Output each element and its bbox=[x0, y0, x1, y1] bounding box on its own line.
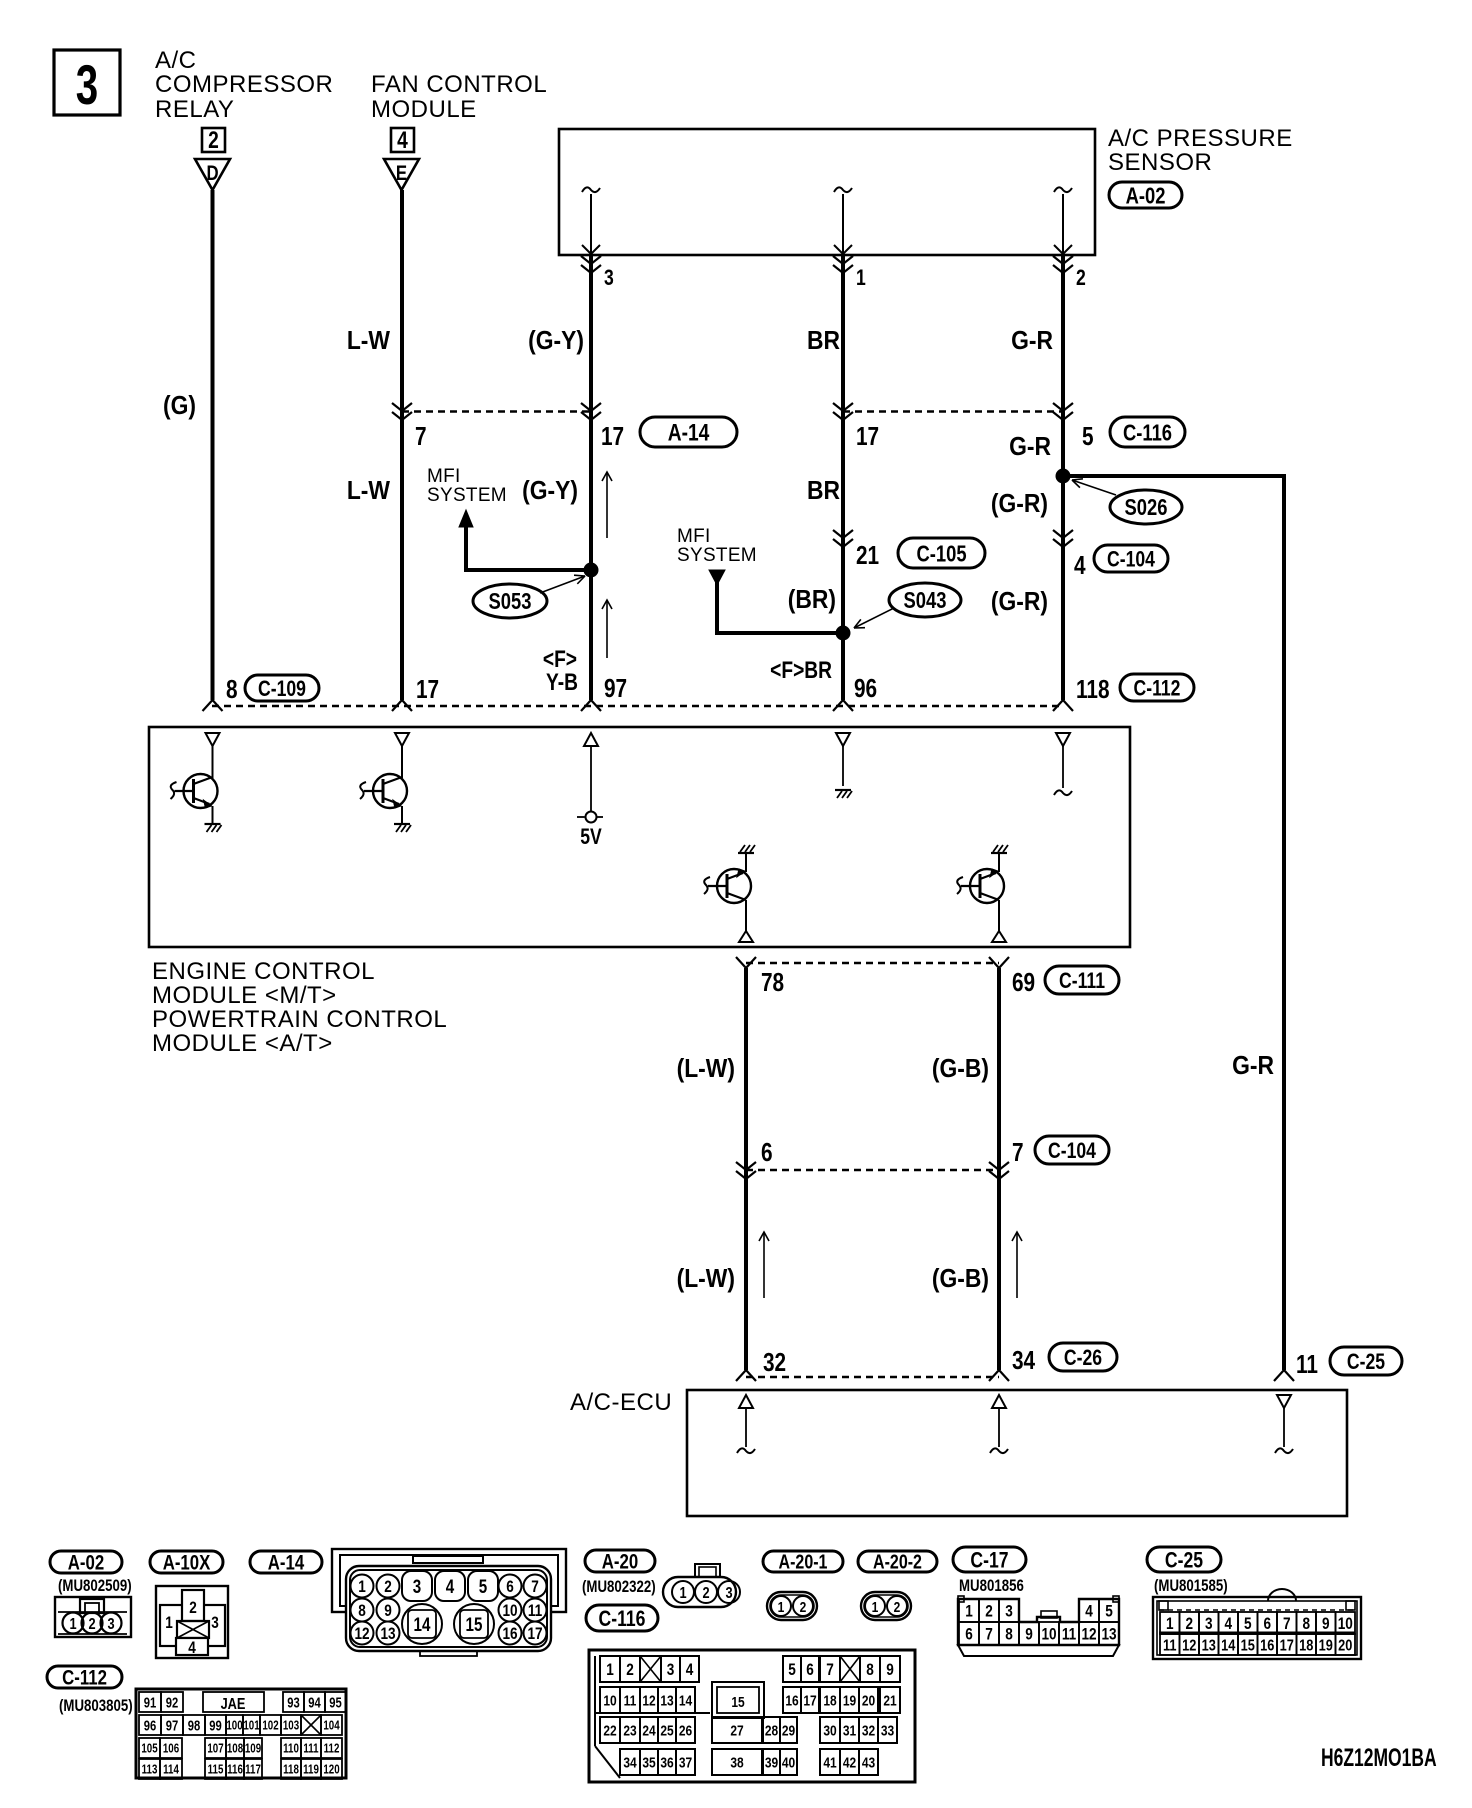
svg-text:6: 6 bbox=[1263, 1615, 1271, 1634]
svg-text:14: 14 bbox=[679, 1692, 693, 1709]
svg-text:10: 10 bbox=[1338, 1615, 1353, 1634]
svg-text:A-14: A-14 bbox=[268, 1552, 305, 1575]
svg-text:C-111: C-111 bbox=[1059, 969, 1105, 993]
svg-text:1: 1 bbox=[679, 1585, 686, 1603]
svg-text:96: 96 bbox=[854, 674, 877, 703]
svg-text:103: 103 bbox=[283, 1719, 299, 1733]
svg-text:C-116: C-116 bbox=[599, 1607, 646, 1631]
svg-text:112: 112 bbox=[324, 1742, 340, 1756]
svg-text:(G-R): (G-R) bbox=[991, 490, 1048, 519]
svg-text:5: 5 bbox=[1082, 422, 1094, 451]
svg-text:16: 16 bbox=[502, 1625, 517, 1644]
svg-text:C-17: C-17 bbox=[970, 1549, 1008, 1573]
svg-text:1: 1 bbox=[872, 1599, 879, 1616]
svg-text:3: 3 bbox=[413, 1575, 421, 1597]
svg-text:109: 109 bbox=[245, 1742, 261, 1756]
svg-text:15: 15 bbox=[731, 1694, 745, 1711]
svg-text:3: 3 bbox=[1205, 1615, 1213, 1634]
svg-text:4: 4 bbox=[1224, 1615, 1232, 1634]
svg-text:(L-W): (L-W) bbox=[677, 1055, 735, 1084]
svg-text:110: 110 bbox=[283, 1742, 299, 1756]
svg-text:7: 7 bbox=[826, 1661, 834, 1680]
svg-text:A-20-2: A-20-2 bbox=[873, 1551, 922, 1573]
svg-text:6: 6 bbox=[506, 1578, 514, 1597]
svg-text:7: 7 bbox=[985, 1625, 993, 1644]
svg-text:32: 32 bbox=[862, 1722, 876, 1739]
svg-text:15: 15 bbox=[1241, 1637, 1255, 1655]
svg-text:<F>BR: <F>BR bbox=[770, 656, 832, 684]
svg-text:A-20-1: A-20-1 bbox=[779, 1551, 828, 1573]
svg-text:107: 107 bbox=[207, 1742, 223, 1756]
svg-text:COMPRESSOR: COMPRESSOR bbox=[155, 71, 333, 98]
svg-text:6: 6 bbox=[761, 1138, 773, 1167]
svg-text:120: 120 bbox=[323, 1763, 339, 1777]
svg-text:3: 3 bbox=[667, 1661, 675, 1680]
svg-text:38: 38 bbox=[730, 1754, 744, 1771]
svg-text:9: 9 bbox=[1025, 1625, 1033, 1644]
svg-text:C-25: C-25 bbox=[1165, 1549, 1203, 1573]
svg-text:96: 96 bbox=[144, 1717, 157, 1734]
svg-text:1: 1 bbox=[1166, 1615, 1174, 1634]
svg-text:23: 23 bbox=[623, 1722, 637, 1739]
svg-text:7: 7 bbox=[1283, 1615, 1291, 1634]
svg-text:94: 94 bbox=[308, 1694, 321, 1711]
svg-text:13: 13 bbox=[660, 1692, 674, 1709]
svg-text:16: 16 bbox=[785, 1692, 799, 1709]
svg-text:A-14: A-14 bbox=[668, 419, 710, 447]
svg-text:92: 92 bbox=[166, 1694, 179, 1711]
svg-text:C-104: C-104 bbox=[1107, 548, 1155, 572]
svg-text:35: 35 bbox=[642, 1754, 656, 1771]
svg-text:102: 102 bbox=[262, 1719, 278, 1733]
svg-text:8: 8 bbox=[1302, 1615, 1310, 1634]
svg-text:113: 113 bbox=[142, 1763, 158, 1777]
svg-text:A-20: A-20 bbox=[602, 1551, 638, 1574]
svg-text:BR: BR bbox=[807, 327, 840, 356]
svg-text:41: 41 bbox=[823, 1754, 837, 1771]
svg-text:118: 118 bbox=[1076, 675, 1110, 704]
svg-text:D: D bbox=[206, 162, 218, 185]
svg-text:3: 3 bbox=[76, 55, 98, 117]
svg-text:3: 3 bbox=[107, 1616, 114, 1634]
svg-text:43: 43 bbox=[862, 1754, 876, 1771]
svg-text:A/C: A/C bbox=[155, 47, 197, 74]
svg-text:SYSTEM: SYSTEM bbox=[677, 545, 757, 566]
svg-text:25: 25 bbox=[660, 1722, 674, 1739]
svg-text:2: 2 bbox=[208, 126, 219, 154]
svg-text:(BR): (BR) bbox=[788, 586, 836, 615]
svg-text:ENGINE CONTROL: ENGINE CONTROL bbox=[152, 958, 375, 985]
svg-text:3: 3 bbox=[604, 266, 614, 290]
svg-text:27: 27 bbox=[730, 1722, 743, 1739]
svg-text:G-R: G-R bbox=[1232, 1052, 1274, 1081]
svg-text:1: 1 bbox=[358, 1578, 366, 1597]
svg-text:29: 29 bbox=[782, 1722, 796, 1739]
svg-text:C-116: C-116 bbox=[1123, 420, 1172, 445]
svg-text:(G-B): (G-B) bbox=[932, 1055, 989, 1084]
svg-text:MFI: MFI bbox=[677, 526, 711, 547]
svg-text:BR: BR bbox=[807, 477, 840, 506]
svg-text:97: 97 bbox=[166, 1717, 179, 1734]
svg-text:10: 10 bbox=[1041, 1625, 1056, 1644]
svg-text:19: 19 bbox=[1319, 1637, 1333, 1655]
svg-text:MODULE: MODULE bbox=[371, 96, 477, 123]
svg-text:(L-W): (L-W) bbox=[677, 1265, 735, 1294]
svg-text:C-105: C-105 bbox=[916, 541, 966, 566]
svg-text:C-104: C-104 bbox=[1048, 1139, 1096, 1163]
svg-text:15: 15 bbox=[466, 1613, 483, 1635]
svg-text:(G-R): (G-R) bbox=[991, 588, 1048, 617]
svg-text:31: 31 bbox=[843, 1722, 857, 1739]
svg-text:2: 2 bbox=[88, 1616, 95, 1634]
svg-text:FAN CONTROL: FAN CONTROL bbox=[371, 71, 547, 98]
svg-text:105: 105 bbox=[141, 1742, 158, 1756]
svg-text:RELAY: RELAY bbox=[155, 96, 234, 123]
svg-text:117: 117 bbox=[245, 1763, 261, 1777]
svg-text:C-112: C-112 bbox=[1134, 677, 1181, 701]
svg-text:14: 14 bbox=[1221, 1637, 1235, 1655]
svg-text:111: 111 bbox=[303, 1742, 319, 1756]
svg-text:37: 37 bbox=[679, 1754, 692, 1771]
svg-text:2: 2 bbox=[702, 1585, 709, 1603]
svg-text:C-109: C-109 bbox=[258, 677, 306, 701]
svg-text:2: 2 bbox=[894, 1599, 901, 1616]
svg-text:7: 7 bbox=[1012, 1138, 1024, 1167]
svg-text:L-W: L-W bbox=[347, 327, 391, 356]
svg-text:A-02: A-02 bbox=[1126, 183, 1166, 208]
svg-text:A/C-ECU: A/C-ECU bbox=[570, 1389, 672, 1416]
svg-text:95: 95 bbox=[329, 1694, 342, 1711]
svg-text:5: 5 bbox=[479, 1575, 488, 1597]
svg-text:5: 5 bbox=[788, 1661, 796, 1680]
svg-text:11: 11 bbox=[1062, 1625, 1077, 1644]
svg-text:1: 1 bbox=[856, 266, 866, 290]
svg-text:69: 69 bbox=[1012, 968, 1035, 997]
svg-text:11: 11 bbox=[528, 1602, 543, 1621]
svg-text:8: 8 bbox=[358, 1602, 366, 1621]
svg-text:39: 39 bbox=[765, 1754, 779, 1771]
svg-text:108: 108 bbox=[227, 1742, 244, 1756]
svg-text:17: 17 bbox=[527, 1625, 542, 1644]
svg-text:2: 2 bbox=[985, 1602, 993, 1621]
svg-text:19: 19 bbox=[843, 1692, 857, 1709]
svg-text:(G): (G) bbox=[163, 392, 196, 421]
svg-text:119: 119 bbox=[303, 1763, 319, 1777]
svg-text:7: 7 bbox=[415, 422, 427, 451]
svg-text:24: 24 bbox=[642, 1722, 656, 1739]
svg-text:2: 2 bbox=[1185, 1615, 1193, 1634]
svg-text:10: 10 bbox=[502, 1602, 517, 1621]
svg-text:MODULE <M/T>: MODULE <M/T> bbox=[152, 982, 337, 1009]
svg-text:(MU802322): (MU802322) bbox=[582, 1578, 656, 1597]
svg-text:G-R: G-R bbox=[1011, 327, 1053, 356]
svg-text:13: 13 bbox=[1202, 1637, 1216, 1655]
svg-text:MU801856: MU801856 bbox=[959, 1577, 1024, 1596]
svg-text:A-10X: A-10X bbox=[163, 1552, 211, 1575]
svg-text:SYSTEM: SYSTEM bbox=[427, 485, 507, 506]
svg-text:22: 22 bbox=[603, 1722, 617, 1739]
svg-text:C-25: C-25 bbox=[1347, 1350, 1385, 1374]
svg-text:118: 118 bbox=[283, 1763, 299, 1777]
svg-text:13: 13 bbox=[1101, 1625, 1116, 1644]
svg-text:33: 33 bbox=[881, 1722, 895, 1739]
svg-text:S026: S026 bbox=[1125, 495, 1168, 520]
svg-text:6: 6 bbox=[806, 1661, 814, 1680]
svg-text:21: 21 bbox=[856, 541, 879, 570]
svg-text:C-112: C-112 bbox=[62, 1667, 107, 1690]
svg-text:6: 6 bbox=[965, 1625, 973, 1644]
svg-text:42: 42 bbox=[843, 1754, 857, 1771]
svg-text:12: 12 bbox=[354, 1625, 369, 1644]
svg-text:104: 104 bbox=[323, 1719, 340, 1733]
svg-text:(G-Y): (G-Y) bbox=[528, 327, 584, 356]
svg-text:2: 2 bbox=[384, 1578, 392, 1597]
svg-text:MODULE <A/T>: MODULE <A/T> bbox=[152, 1030, 333, 1057]
svg-text:(MU803805): (MU803805) bbox=[59, 1697, 133, 1716]
svg-text:JAE: JAE bbox=[221, 1696, 246, 1714]
svg-text:106: 106 bbox=[163, 1742, 179, 1756]
svg-text:18: 18 bbox=[1299, 1637, 1313, 1655]
svg-text:4: 4 bbox=[188, 1639, 196, 1658]
svg-text:S053: S053 bbox=[489, 589, 532, 614]
svg-text:16: 16 bbox=[1260, 1637, 1274, 1655]
svg-text:91: 91 bbox=[144, 1694, 157, 1711]
svg-text:11: 11 bbox=[1296, 1350, 1318, 1379]
svg-text:34: 34 bbox=[623, 1754, 637, 1771]
svg-text:32: 32 bbox=[763, 1348, 786, 1377]
svg-text:101: 101 bbox=[243, 1719, 260, 1733]
svg-text:2: 2 bbox=[189, 1599, 197, 1618]
svg-text:36: 36 bbox=[660, 1754, 674, 1771]
svg-text:H6Z12MO1BA: H6Z12MO1BA bbox=[1321, 1743, 1437, 1772]
svg-text:1: 1 bbox=[965, 1602, 973, 1621]
svg-text:4: 4 bbox=[1074, 551, 1086, 580]
svg-text:78: 78 bbox=[761, 968, 784, 997]
svg-text:12: 12 bbox=[642, 1692, 656, 1709]
svg-text:17: 17 bbox=[601, 422, 624, 451]
svg-text:1: 1 bbox=[69, 1616, 76, 1634]
svg-text:5V: 5V bbox=[580, 825, 602, 849]
svg-text:A-02: A-02 bbox=[68, 1552, 104, 1575]
svg-text:POWERTRAIN CONTROL: POWERTRAIN CONTROL bbox=[152, 1006, 447, 1033]
svg-text:2: 2 bbox=[800, 1599, 807, 1616]
svg-text:116: 116 bbox=[227, 1763, 243, 1777]
svg-text:14: 14 bbox=[414, 1613, 431, 1635]
svg-text:1: 1 bbox=[778, 1599, 785, 1616]
svg-text:17: 17 bbox=[1280, 1637, 1294, 1655]
svg-text:93: 93 bbox=[287, 1694, 300, 1711]
svg-text:8: 8 bbox=[1005, 1625, 1013, 1644]
svg-text:9: 9 bbox=[384, 1602, 392, 1621]
svg-text:L-W: L-W bbox=[347, 477, 391, 506]
svg-text:C-26: C-26 bbox=[1064, 1346, 1102, 1370]
svg-text:E: E bbox=[396, 162, 407, 185]
svg-text:(MU802509): (MU802509) bbox=[58, 1577, 132, 1596]
svg-text:4: 4 bbox=[686, 1661, 694, 1680]
svg-text:3: 3 bbox=[725, 1585, 732, 1603]
svg-text:1: 1 bbox=[606, 1661, 614, 1680]
svg-text:4: 4 bbox=[446, 1575, 455, 1597]
svg-text:8: 8 bbox=[866, 1661, 874, 1680]
svg-text:2: 2 bbox=[1076, 266, 1086, 290]
svg-text:(G-Y): (G-Y) bbox=[522, 477, 578, 506]
svg-text:34: 34 bbox=[1012, 1346, 1035, 1375]
svg-text:7: 7 bbox=[531, 1578, 539, 1597]
svg-text:11: 11 bbox=[1163, 1637, 1177, 1655]
svg-text:SENSOR: SENSOR bbox=[1108, 149, 1212, 176]
svg-text:1: 1 bbox=[165, 1614, 173, 1633]
svg-text:MFI: MFI bbox=[427, 466, 461, 487]
svg-text:2: 2 bbox=[626, 1661, 634, 1680]
svg-text:A/C PRESSURE: A/C PRESSURE bbox=[1108, 125, 1293, 152]
svg-text:40: 40 bbox=[782, 1754, 795, 1771]
svg-text:12: 12 bbox=[1182, 1637, 1196, 1655]
svg-text:4: 4 bbox=[397, 126, 408, 154]
svg-text:5: 5 bbox=[1244, 1615, 1252, 1634]
svg-text:12: 12 bbox=[1081, 1625, 1096, 1644]
svg-text:115: 115 bbox=[208, 1763, 224, 1777]
svg-text:9: 9 bbox=[1322, 1615, 1330, 1634]
svg-text:100: 100 bbox=[226, 1719, 242, 1733]
svg-text:(MU801585): (MU801585) bbox=[1154, 1577, 1228, 1596]
svg-text:21: 21 bbox=[883, 1692, 897, 1709]
svg-text:9: 9 bbox=[886, 1661, 894, 1680]
svg-text:3: 3 bbox=[1005, 1602, 1013, 1621]
svg-text:S043: S043 bbox=[904, 588, 947, 613]
svg-text:20: 20 bbox=[862, 1692, 875, 1709]
svg-text:26: 26 bbox=[679, 1722, 693, 1739]
svg-text:17: 17 bbox=[856, 422, 879, 451]
svg-text:18: 18 bbox=[823, 1692, 837, 1709]
svg-text:20: 20 bbox=[1338, 1637, 1352, 1655]
svg-text:Y-B: Y-B bbox=[546, 668, 578, 696]
svg-text:30: 30 bbox=[823, 1722, 836, 1739]
svg-text:17: 17 bbox=[803, 1692, 816, 1709]
svg-text:99: 99 bbox=[209, 1717, 222, 1734]
svg-text:13: 13 bbox=[380, 1625, 395, 1644]
svg-text:8: 8 bbox=[226, 675, 238, 704]
svg-text:3: 3 bbox=[211, 1614, 219, 1633]
svg-text:5: 5 bbox=[1105, 1602, 1113, 1621]
svg-text:98: 98 bbox=[188, 1717, 201, 1734]
svg-text:17: 17 bbox=[416, 675, 439, 704]
svg-text:114: 114 bbox=[163, 1763, 179, 1777]
svg-text:28: 28 bbox=[765, 1722, 779, 1739]
svg-text:11: 11 bbox=[624, 1692, 637, 1709]
svg-text:97: 97 bbox=[604, 674, 627, 703]
svg-text:G-R: G-R bbox=[1009, 433, 1051, 462]
svg-text:(G-B): (G-B) bbox=[932, 1265, 989, 1294]
svg-text:4: 4 bbox=[1085, 1602, 1093, 1621]
svg-text:10: 10 bbox=[603, 1692, 616, 1709]
